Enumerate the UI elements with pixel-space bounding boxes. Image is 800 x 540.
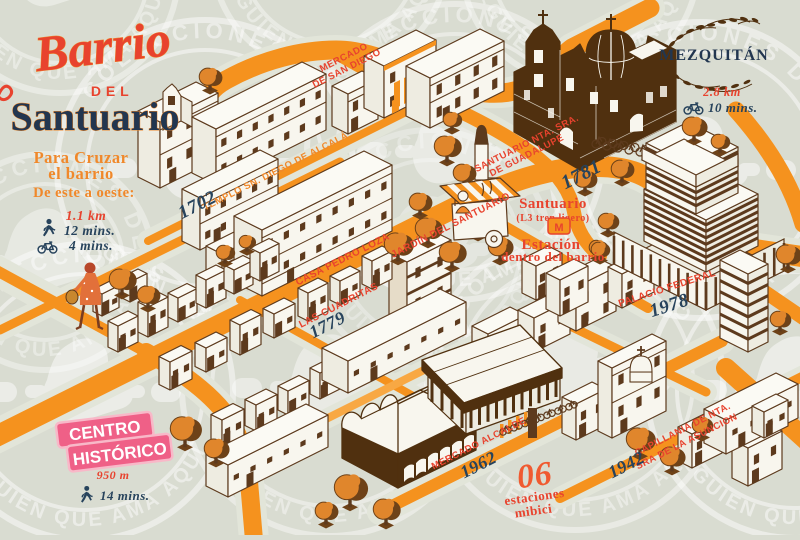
svg-text:De este a oeste:: De este a oeste:	[33, 185, 135, 201]
svg-text:el barrio: el barrio	[48, 164, 113, 183]
svg-text:10 mins.: 10 mins.	[708, 100, 758, 115]
svg-text:1.1 km: 1.1 km	[66, 208, 107, 223]
svg-text:MEZQUITÁN: MEZQUITÁN	[659, 45, 768, 64]
svg-text:12 mins.: 12 mins.	[64, 223, 115, 238]
svg-text:2.8 km: 2.8 km	[702, 85, 741, 99]
svg-text:14 mins.: 14 mins.	[100, 488, 150, 503]
svg-text:M: M	[554, 222, 563, 234]
svg-text:Santuario: Santuario	[11, 94, 180, 139]
svg-text:Santuario: Santuario	[519, 196, 587, 212]
svg-text:dentro del barrio: dentro del barrio	[501, 249, 605, 264]
svg-text:950 m: 950 m	[97, 468, 130, 482]
svg-text:4 mins.: 4 mins.	[68, 238, 113, 253]
